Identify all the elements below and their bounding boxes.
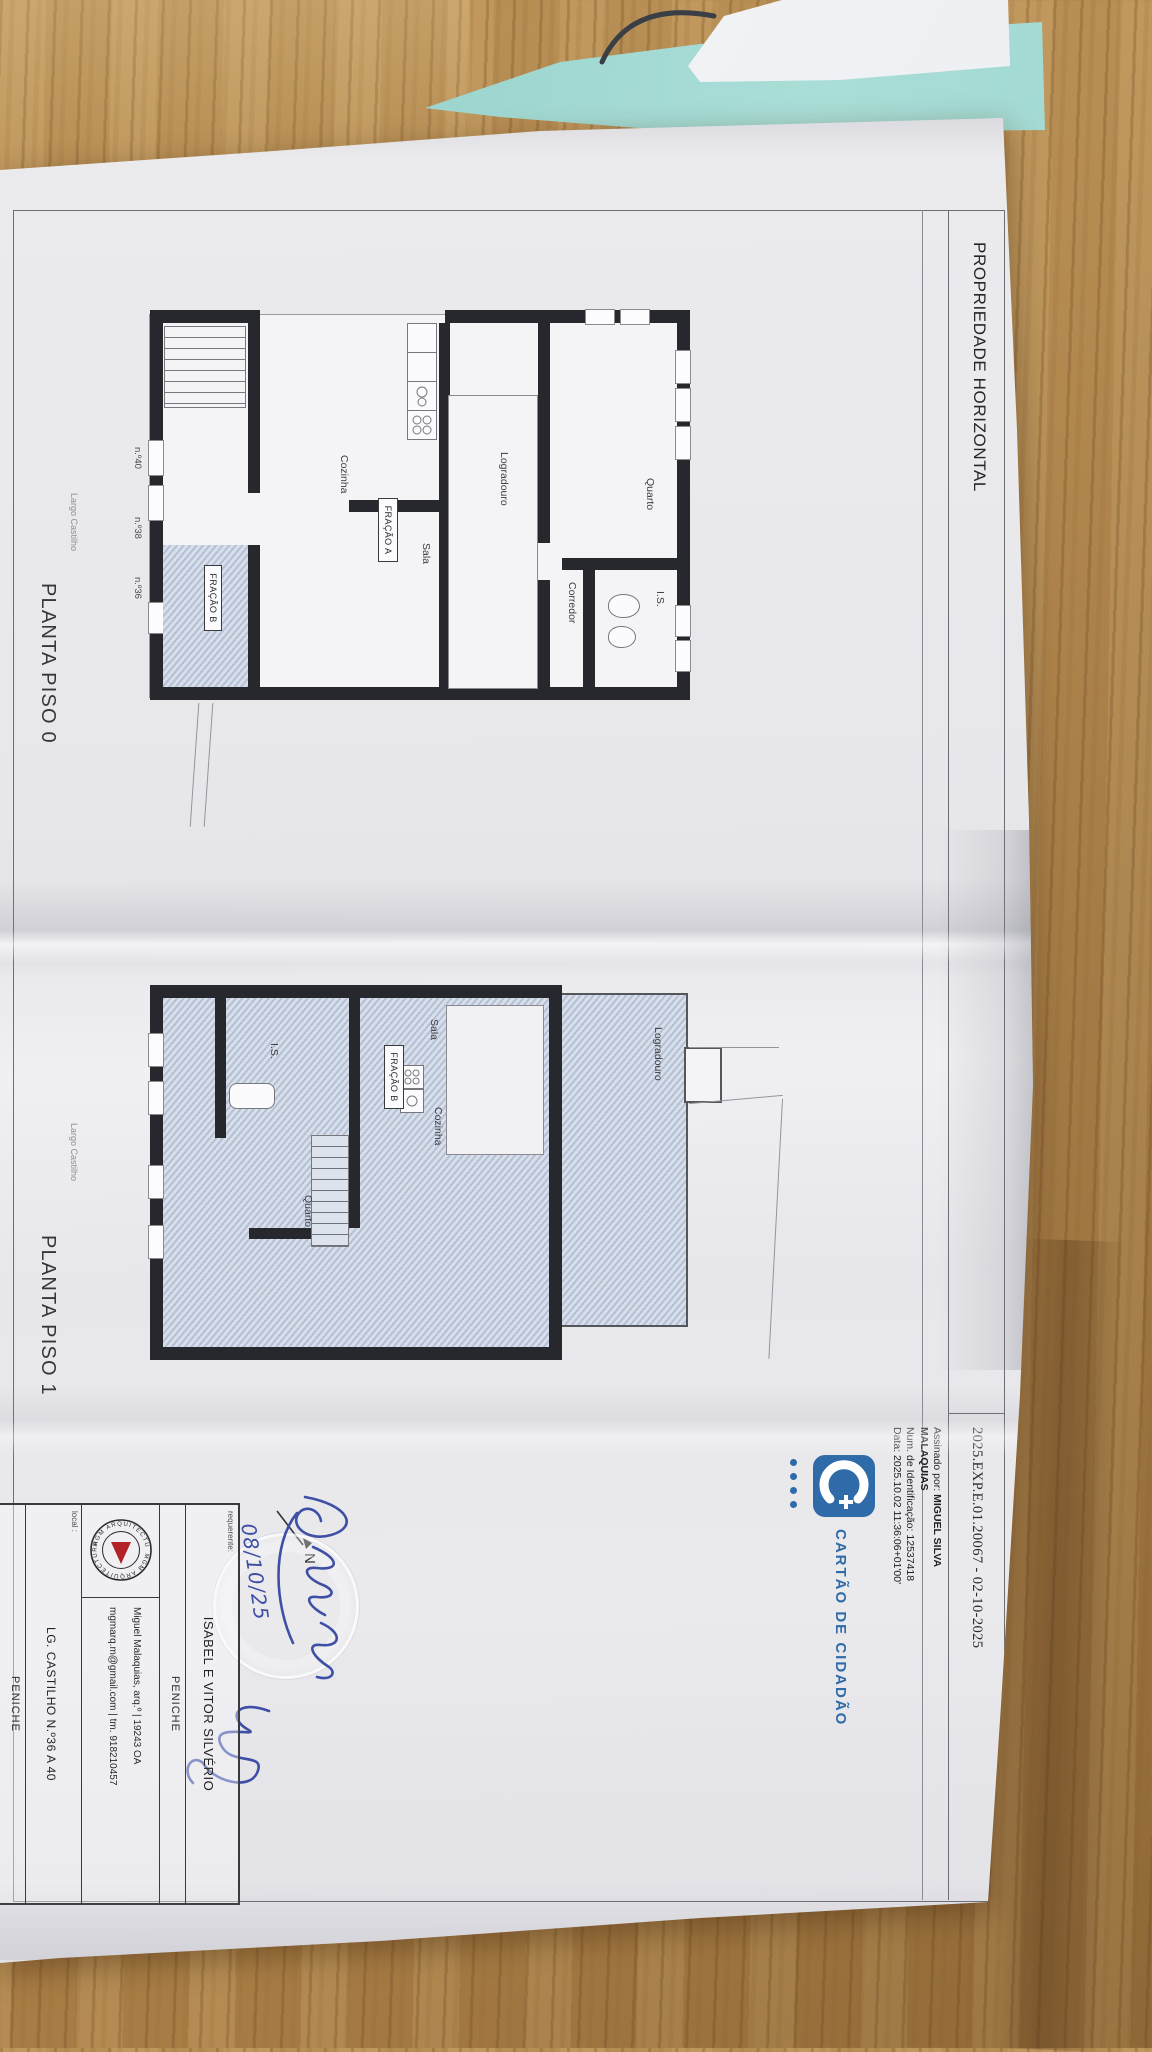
caption-piso0: PLANTA PISO 0	[36, 583, 59, 744]
cc-dot-3	[790, 1487, 797, 1494]
bathtub	[229, 1083, 275, 1109]
signature-id: Num. de Identificação: 12537418	[903, 1427, 916, 1677]
wall	[248, 323, 260, 493]
toilet	[608, 594, 640, 618]
paper-top-shade	[0, 117, 1152, 159]
window	[148, 1081, 164, 1115]
room-label-is: I.S.	[654, 591, 666, 607]
title-block-row-city: PENICHE	[159, 1505, 186, 1903]
wall	[549, 985, 562, 1360]
local-label: local :	[70, 1511, 79, 1532]
unit-label-fracao-b: FRAÇÃO B	[204, 565, 222, 631]
window	[675, 605, 691, 637]
title-block: requerente: ISABEL E VITOR SILVÉRIO PENI…	[0, 1503, 240, 1905]
wall	[445, 310, 690, 323]
citizen-card-label: CARTÃO DE CIDADÃO	[832, 1529, 849, 1726]
window	[148, 440, 164, 476]
bidet	[608, 626, 636, 648]
wall	[215, 998, 226, 1138]
room-label-logradouro-p1: Logradouro	[652, 1027, 664, 1081]
wall	[562, 558, 677, 570]
window	[148, 602, 164, 634]
title-block-row-architect: MGM ARQUITECTURA MGM ARQUITECTURA Miguel…	[81, 1505, 160, 1903]
room-label-logradouro: Logradouro	[498, 452, 510, 506]
signature-date: Data: 2025.10.02 11:36:06+01'00'	[889, 1427, 902, 1677]
street-label-piso0: Largo Castilho	[69, 493, 79, 551]
wall	[538, 580, 550, 687]
room-label-sala: Sala	[420, 543, 432, 564]
paper-fold-crease-2	[0, 1385, 1152, 1457]
title-block-row-requerente: requerente: ISABEL E VITOR SILVÉRIO	[185, 1505, 238, 1903]
cc-dot-4	[790, 1501, 797, 1508]
window	[148, 1165, 164, 1199]
wall	[150, 687, 690, 700]
piso1-stairs	[311, 1135, 349, 1247]
room-label-cozinha-p1: Cozinha	[432, 1107, 444, 1146]
street-number-40: n.º40	[132, 447, 143, 469]
room-label-quarto: Quarto	[644, 478, 656, 510]
wall	[349, 998, 360, 1228]
drawing-sheet: PROPRIEDADE HORIZONTAL 2025.EXP.E.01.200…	[0, 0, 1152, 2048]
cc-dot-1	[790, 1459, 797, 1466]
window	[675, 640, 691, 672]
piso0-courtyard	[448, 395, 538, 689]
kitchen-counter	[407, 323, 437, 353]
kitchen-sink	[407, 381, 437, 411]
citizen-card-logo-icon	[813, 1455, 875, 1517]
piso1-void	[446, 1005, 544, 1155]
signature-name-1: MIGUEL SILVA	[931, 1494, 943, 1567]
window	[585, 309, 615, 325]
drawing-sheet-wrap: PROPRIEDADE HORIZONTAL 2025.EXP.E.01.200…	[0, 0, 1152, 2048]
unit-label-fracao-b-p1: FRAÇÃO B	[384, 1045, 404, 1109]
title-block-row-local: local : LG. CASTILHO N.º36 A 40	[25, 1505, 82, 1903]
window	[620, 309, 650, 325]
city2-value: PENICHE	[9, 1505, 21, 1903]
window	[148, 485, 164, 521]
room-label-sala-p1: Sala	[428, 1019, 440, 1040]
signature-block: Assinado por: MIGUEL SILVA MALAQUIAS Num…	[889, 1427, 943, 1677]
paper-bottom-shade	[0, 1880, 1152, 1960]
wall	[248, 545, 260, 687]
requerente-label: requerente:	[226, 1511, 235, 1552]
piso1-courtyard	[558, 993, 688, 1327]
wall	[583, 570, 595, 687]
architect-line: Miguel Malaquias, arq.º | 19243 OA	[131, 1607, 142, 1764]
kitchen-counter	[407, 352, 437, 382]
requerente-value: ISABEL E VITOR SILVÉRIO	[201, 1505, 216, 1903]
window	[675, 426, 691, 460]
wall	[150, 985, 562, 998]
document-content: PROPRIEDADE HORIZONTAL 2025.EXP.E.01.200…	[0, 125, 1015, 1925]
kitchen-stove	[407, 410, 437, 440]
window	[675, 350, 691, 384]
room-label-is-p1: I.S.	[268, 1043, 280, 1059]
wall	[150, 310, 260, 323]
window	[675, 388, 691, 422]
document-reference: 2025.EXP.E.01.20067 - 02-10-2025	[968, 1427, 985, 1648]
wall	[150, 1347, 562, 1360]
wall	[538, 323, 550, 543]
room-label-quarto-p1: Quarto	[302, 1195, 314, 1227]
street-label-piso1: Largo Castilho	[69, 1123, 79, 1181]
piso1-annex	[684, 1047, 722, 1103]
room-label-cozinha: Cozinha	[338, 455, 350, 494]
floor-plan-piso0: Quarto I.S. Corredor Logradouro Sala Coz…	[150, 310, 690, 700]
unit-label-fracao-a: FRAÇÃO A	[378, 498, 398, 562]
cc-dot-2	[790, 1473, 797, 1480]
street-number-38: n.º38	[132, 517, 143, 539]
contact-line: mgmarq.m@gmail.com | tm. 918210457	[107, 1607, 118, 1785]
title-block-divider	[82, 1597, 160, 1598]
signature-name-2: MALAQUIAS	[916, 1427, 929, 1677]
caption-piso1: PLANTA PISO 1	[36, 1235, 59, 1396]
title-block-row-city2: PENICHE	[0, 1505, 26, 1903]
street-number-36: n.º36	[132, 577, 143, 599]
lot-line	[689, 1047, 779, 1048]
floor-plan-piso1: Logradouro Sala Cozinha I.S. Quarto FRAÇ…	[150, 985, 690, 1360]
window	[148, 1033, 164, 1067]
local-value: LG. CASTILHO N.º36 A 40	[44, 1505, 58, 1903]
document-title: PROPRIEDADE HORIZONTAL	[969, 242, 989, 492]
piso0-stairs	[164, 326, 246, 408]
mgm-logo: MGM ARQUITECTURA MGM ARQUITECTURA	[89, 1518, 153, 1582]
room-label-corredor: Corredor	[566, 582, 578, 623]
window	[148, 1225, 164, 1259]
paper-edge-curl	[938, 830, 1038, 1370]
city-value: PENICHE	[169, 1505, 181, 1903]
